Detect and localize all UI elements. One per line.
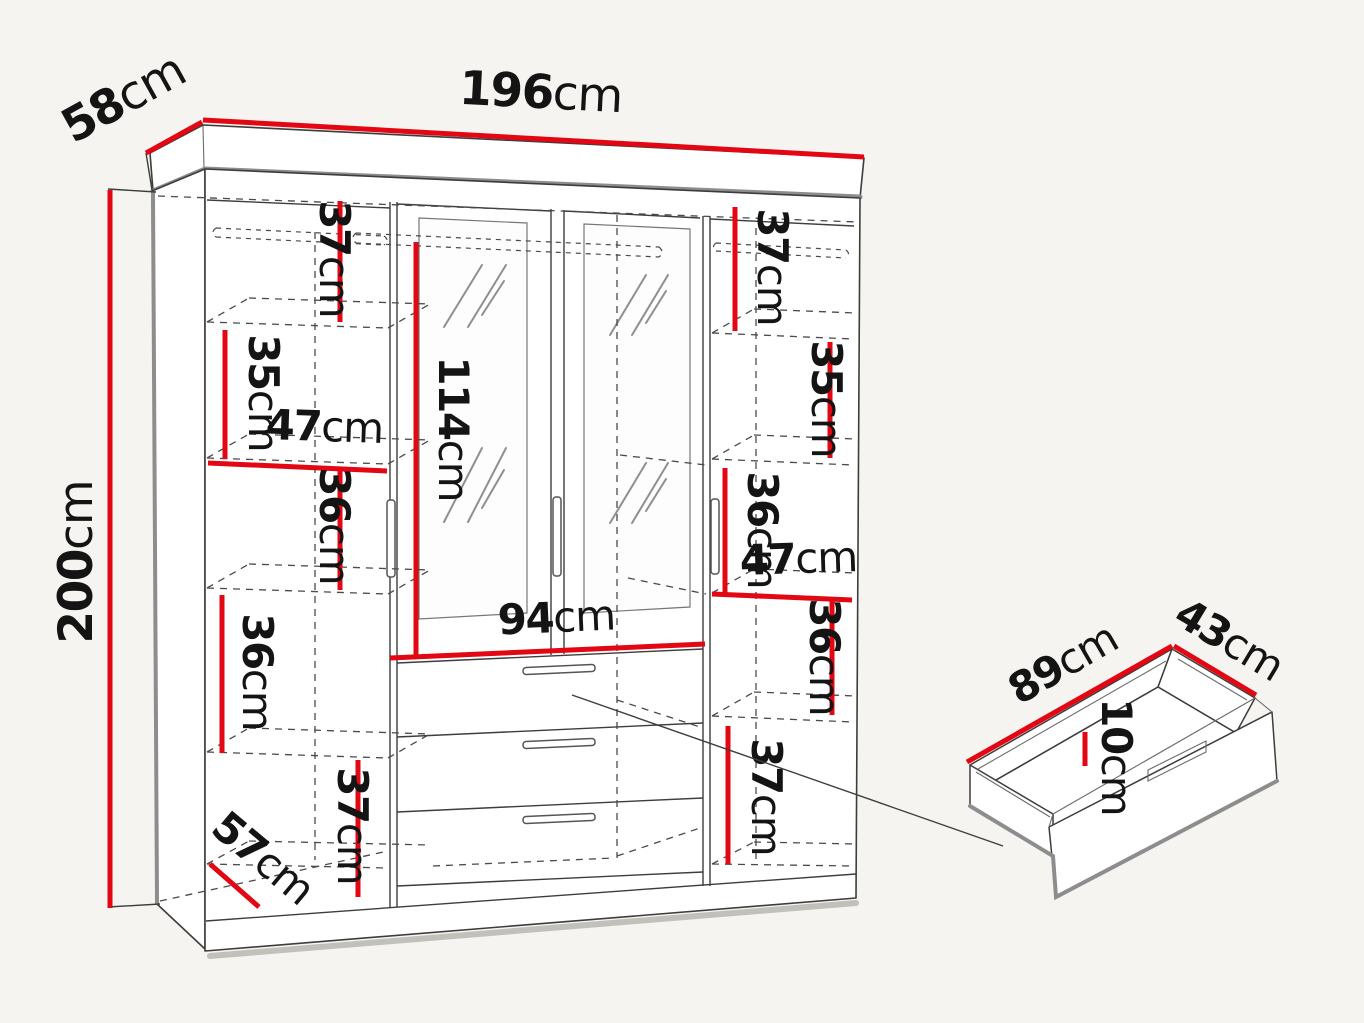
label-left-36-a: 36cm: [310, 467, 359, 584]
label-left-47: 47cm: [265, 400, 384, 453]
label-center-114: 114cm: [429, 356, 478, 501]
label-left-37-bottom: 37cm: [328, 767, 377, 884]
label-height-200: 200cm: [49, 480, 104, 643]
label-right-47: 47cm: [739, 532, 858, 585]
mirror-right: [584, 224, 690, 613]
handle-center-door: [553, 497, 561, 576]
label-right-35: 35cm: [802, 340, 851, 457]
diagram-canvas: 196cm 58cm 200cm 37cm 35cm 47cm 36cm 36c…: [0, 0, 1364, 1023]
label-drawer-10: 10cm: [1092, 698, 1141, 815]
handle-left-door: [387, 500, 395, 577]
label-left-37-top: 37cm: [310, 200, 359, 317]
label-right-36-b: 36cm: [800, 598, 849, 715]
wardrobe-dimension-drawing: 196cm 58cm 200cm 37cm 35cm 47cm 36cm 36c…: [0, 0, 1364, 1023]
label-right-37-top: 37cm: [748, 208, 797, 325]
label-right-37-bottom: 37cm: [742, 738, 791, 855]
label-left-36-b: 36cm: [233, 613, 282, 730]
label-width-196: 196cm: [458, 61, 624, 124]
label-center-94: 94cm: [497, 590, 616, 644]
wardrobe-left-side: [152, 169, 205, 949]
handle-right-door: [711, 499, 719, 574]
